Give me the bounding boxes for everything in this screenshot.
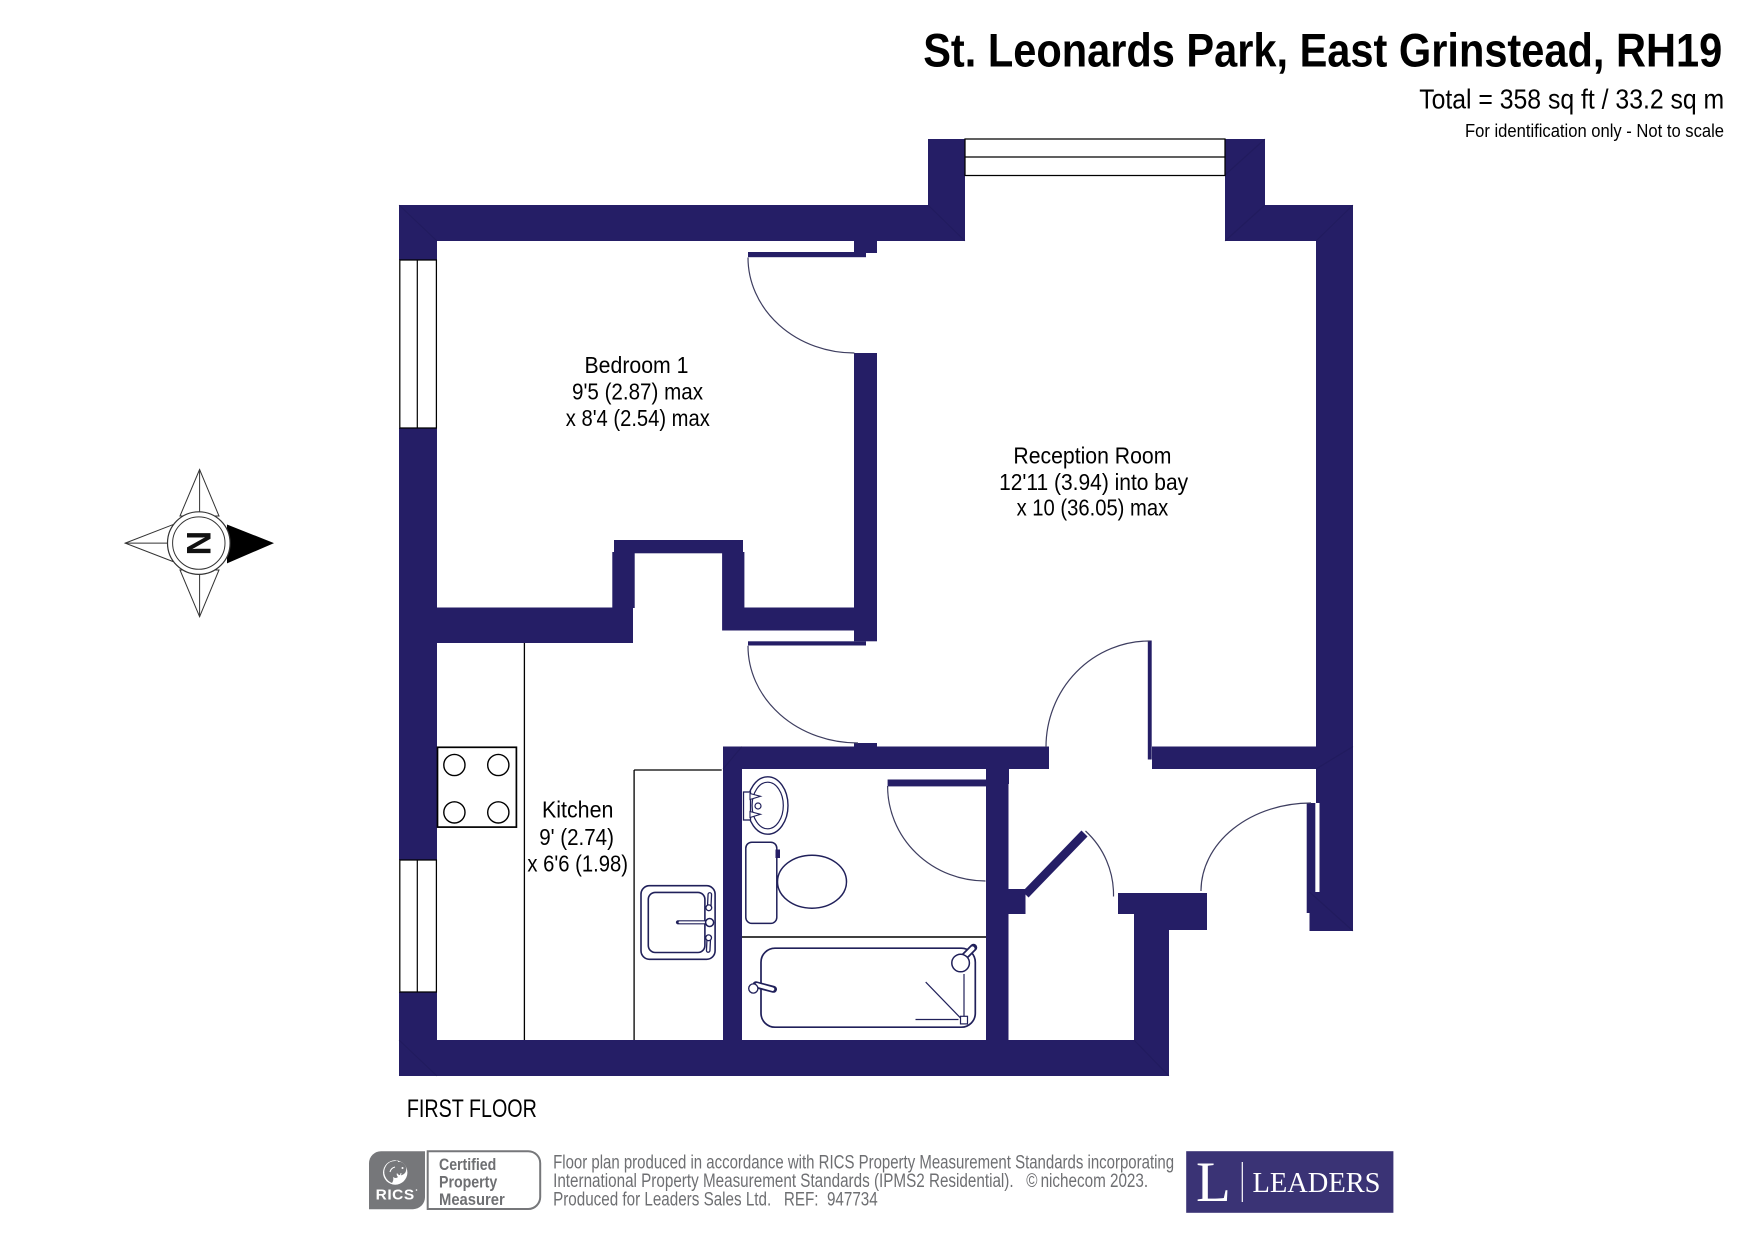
svg-text:Measurer: Measurer <box>439 1191 505 1209</box>
svg-text:x 8'4 (2.54) max: x 8'4 (2.54) max <box>566 405 710 431</box>
svg-text:9' (2.74): 9' (2.74) <box>539 824 614 850</box>
svg-text:12'11 (3.94) into bay: 12'11 (3.94) into bay <box>999 469 1188 495</box>
svg-text:x 10 (36.05) max: x 10 (36.05) max <box>1017 495 1169 521</box>
svg-text:Kitchen: Kitchen <box>542 796 613 822</box>
svg-text:For identification only - Not: For identification only - Not to scale <box>1465 121 1724 141</box>
svg-text:x 6'6 (1.98): x 6'6 (1.98) <box>527 851 628 877</box>
svg-text:St. Leonards Park, East Grinst: St. Leonards Park, East Grinstead, RH19 <box>923 23 1722 76</box>
svg-text:Bedroom 1: Bedroom 1 <box>585 352 689 378</box>
svg-text:9'5 (2.87) max: 9'5 (2.87) max <box>572 379 703 405</box>
svg-text:Property: Property <box>439 1174 497 1192</box>
svg-text:Certified: Certified <box>439 1156 496 1174</box>
svg-text:N: N <box>179 531 217 556</box>
svg-text:FIRST FLOOR: FIRST FLOOR <box>407 1095 537 1123</box>
svg-text:Total = 358 sq ft / 33.2 sq m: Total = 358 sq ft / 33.2 sq m <box>1419 84 1724 115</box>
svg-text:LEADERS: LEADERS <box>1253 1168 1381 1199</box>
svg-text:RICS: RICS <box>376 1188 415 1204</box>
svg-text:Produced for Leaders Sales Ltd: Produced for Leaders Sales Ltd. REF: 947… <box>553 1189 878 1210</box>
svg-text:L: L <box>1196 1151 1231 1214</box>
svg-text:Reception Room: Reception Room <box>1013 443 1171 469</box>
